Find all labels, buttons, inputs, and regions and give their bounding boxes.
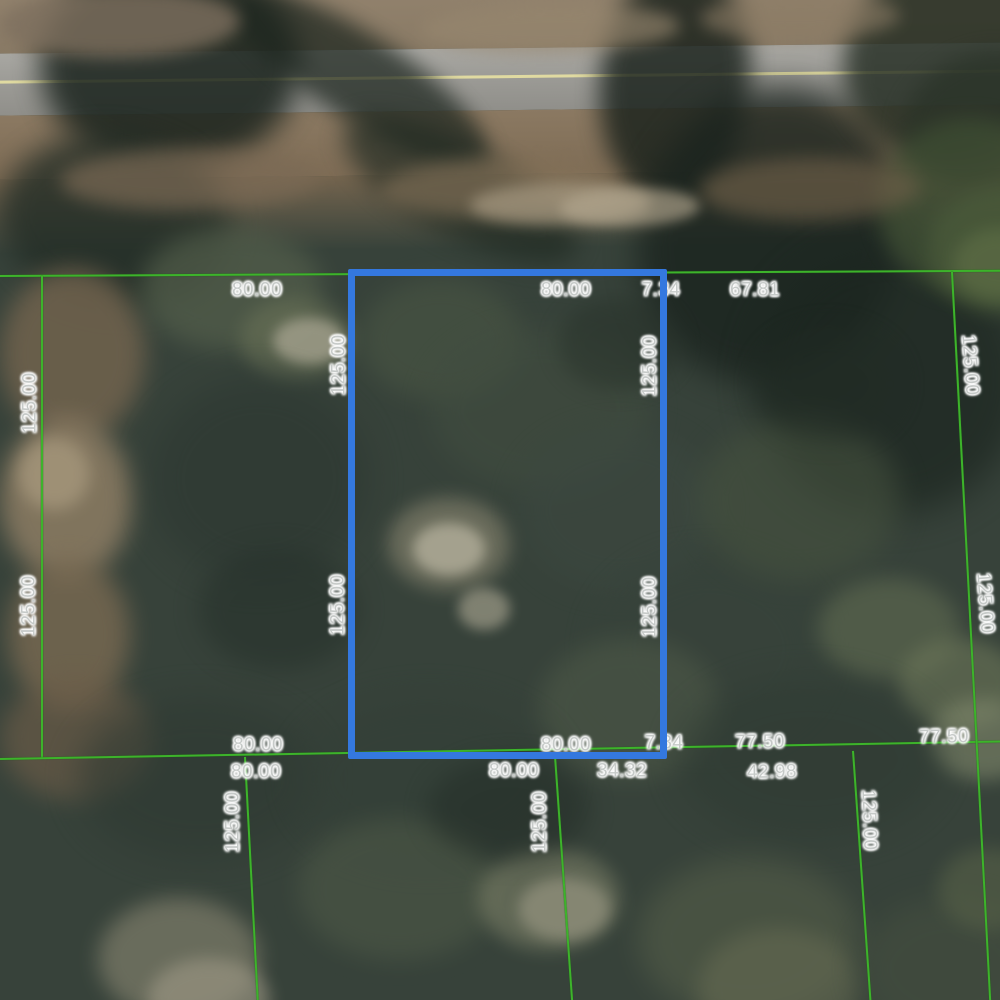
parcel-boundary-line-west <box>41 276 43 759</box>
vegetation-texture <box>0 268 145 440</box>
vegetation-texture <box>240 298 352 380</box>
vegetation-texture <box>0 418 132 580</box>
vegetation-texture <box>698 418 900 580</box>
dimension-label: 34.32 <box>597 762 647 781</box>
dimension-label: 125.00 <box>329 574 348 635</box>
dimension-label: 80.00 <box>232 281 282 300</box>
parcel-boundary-line-east-slant <box>951 272 991 1000</box>
parcel-boundary-line-lower-1 <box>244 757 259 1000</box>
vegetation-texture <box>298 818 500 960</box>
dimension-label: 77.50 <box>735 732 785 752</box>
vegetation-texture <box>273 318 345 364</box>
dimension-label: 125.00 <box>958 334 981 396</box>
dimension-label: 125.00 <box>224 791 243 852</box>
vegetation-texture <box>758 328 900 440</box>
vegetation-texture <box>428 758 590 860</box>
dimension-label: 125.00 <box>531 791 550 852</box>
dimension-label: 125.00 <box>330 334 349 395</box>
dimension-label: 125.00 <box>20 575 39 636</box>
vegetation-texture <box>698 928 860 1000</box>
vegetation-texture <box>858 898 1000 1000</box>
parcel-boundary-line-lower-3 <box>852 751 872 1000</box>
vegetation-texture <box>898 638 1000 730</box>
road-shoulder-near <box>0 104 1000 180</box>
dimension-label: 77.50 <box>919 727 969 747</box>
road <box>0 0 1000 254</box>
vegetation-texture <box>478 848 620 950</box>
vegetation-texture <box>198 548 360 670</box>
vegetation-texture <box>938 848 1000 930</box>
dimension-label: 80.00 <box>231 763 281 782</box>
selected-parcel-highlight[interactable] <box>348 269 667 759</box>
road-shoulder-fade <box>0 168 1000 254</box>
vegetation-texture <box>148 958 270 1000</box>
vegetation-texture <box>0 678 152 800</box>
dimension-label: 42.98 <box>747 762 797 782</box>
vegetation-texture <box>638 858 860 1000</box>
vegetation-texture <box>928 698 1000 780</box>
vegetation-texture <box>78 698 320 860</box>
dimension-label: 125.00 <box>21 372 40 433</box>
vegetation-texture <box>98 898 260 1000</box>
dimension-label: 80.00 <box>233 736 283 755</box>
vegetation-texture <box>818 578 960 680</box>
dimension-label: 125.00 <box>973 572 996 634</box>
map-canvas[interactable]: 80.0080.007.3467.81125.00125.00125.00125… <box>0 0 1000 1000</box>
vegetation-texture <box>8 558 130 710</box>
dimension-label: 67.81 <box>730 281 780 300</box>
vegetation-texture <box>678 678 940 840</box>
vegetation-texture <box>148 378 370 580</box>
parcel-boundary-line-lower-2 <box>554 756 573 1000</box>
dimension-label: 125.00 <box>858 789 879 851</box>
dimension-label: 80.00 <box>489 762 539 781</box>
vegetation-texture <box>18 438 90 510</box>
